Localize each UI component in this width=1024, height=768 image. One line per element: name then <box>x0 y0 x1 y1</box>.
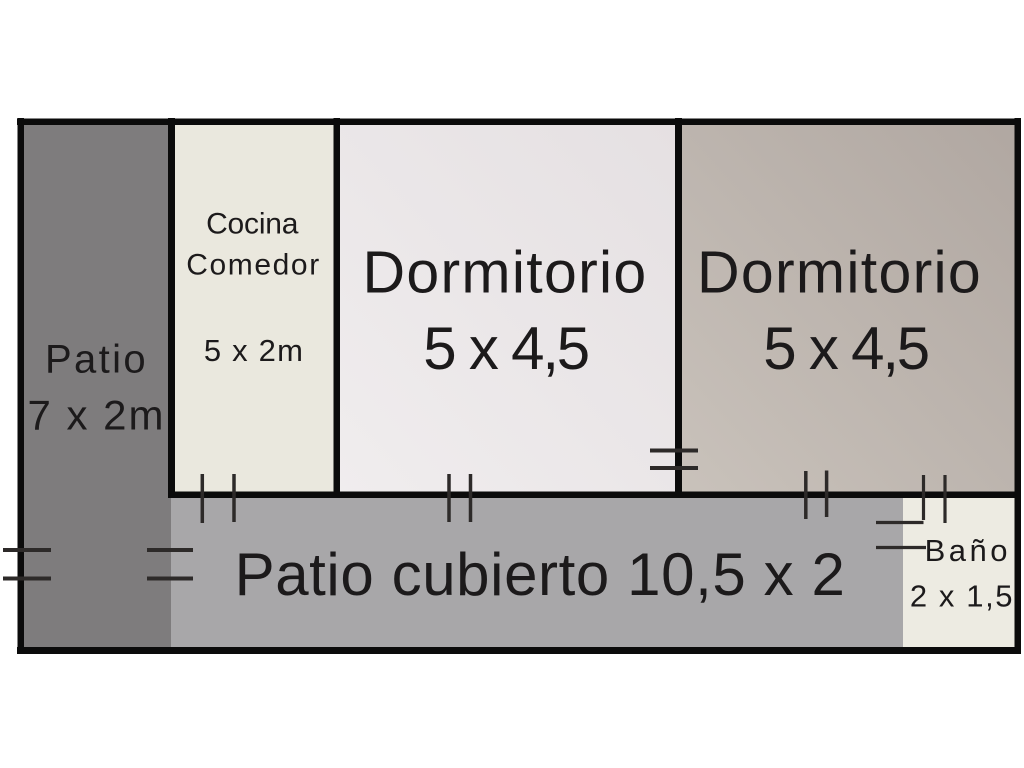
svg-text:Cocina: Cocina <box>206 208 299 241</box>
svg-text:Comedor: Comedor <box>186 249 321 282</box>
svg-text:5 x 4,5: 5 x 4,5 <box>763 315 928 382</box>
svg-text:Patio: Patio <box>45 338 148 382</box>
svg-text:5 x 2m: 5 x 2m <box>204 333 304 368</box>
svg-text:5 x 4,5: 5 x 4,5 <box>423 315 588 382</box>
svg-text:7 x 2m: 7 x 2m <box>27 392 165 439</box>
svg-text:Patio cubierto 10,5 x 2: Patio cubierto 10,5 x 2 <box>235 541 846 608</box>
svg-text:Dormitorio: Dormitorio <box>697 240 982 306</box>
svg-text:2 x 1,5: 2 x 1,5 <box>910 579 1014 614</box>
svg-text:Baño: Baño <box>925 533 1011 568</box>
svg-text:Dormitorio: Dormitorio <box>362 240 647 306</box>
